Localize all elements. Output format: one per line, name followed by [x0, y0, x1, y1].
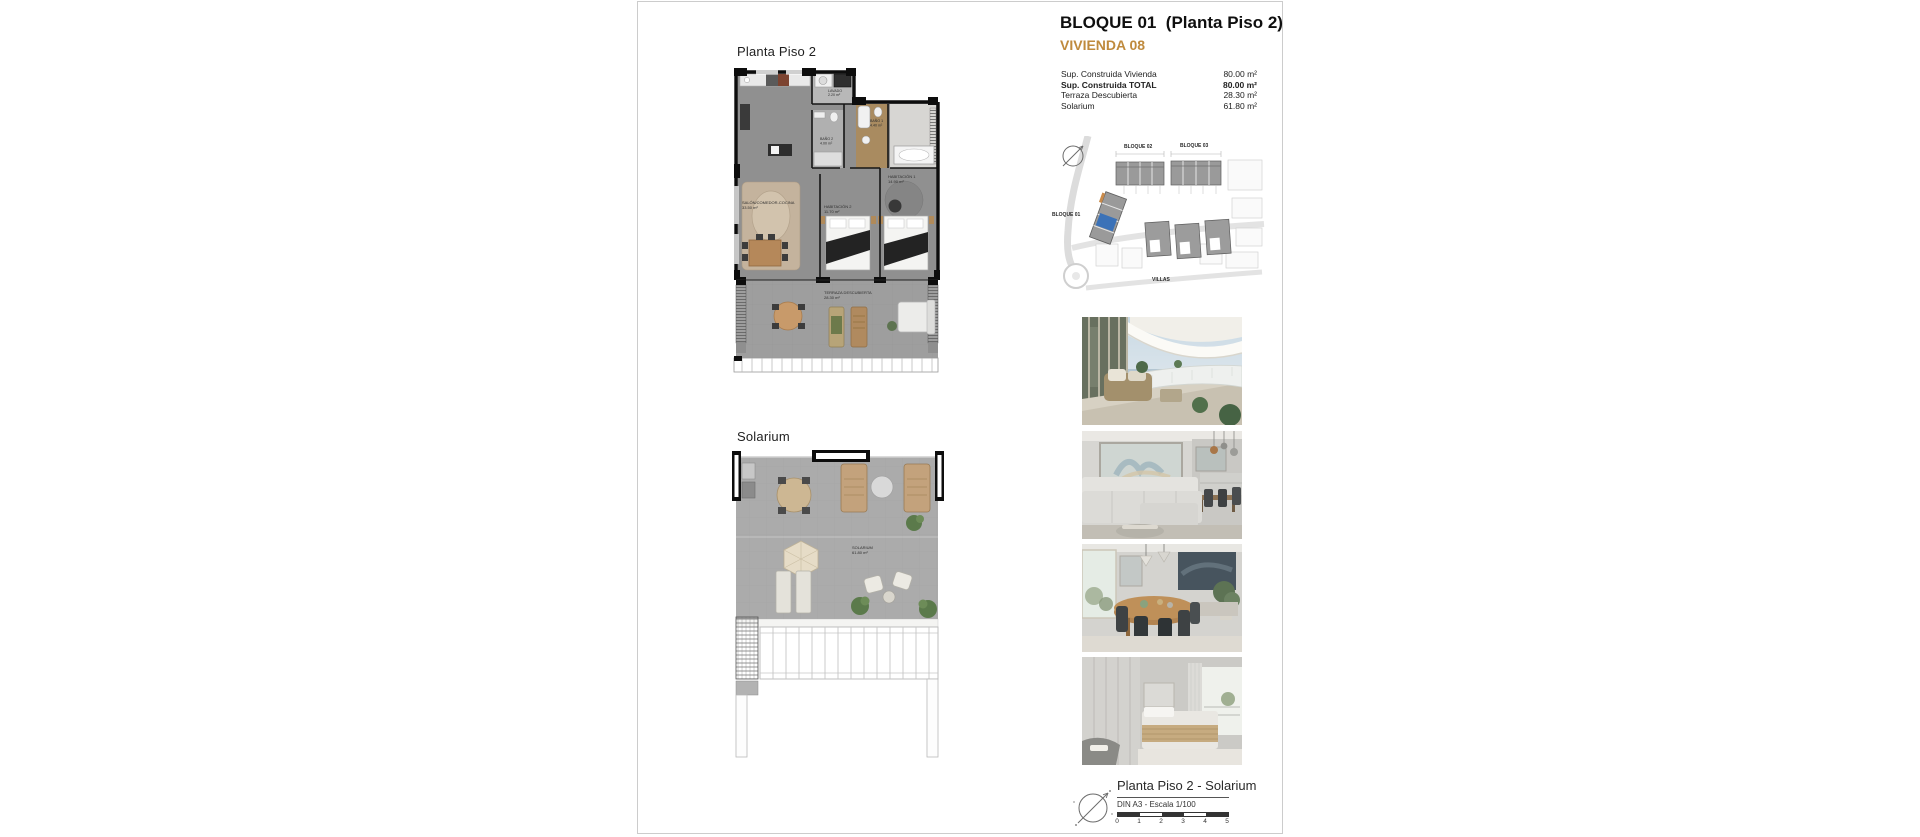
scale-tick: 4: [1201, 818, 1209, 825]
kitchen-tall-unit: [740, 104, 750, 130]
site-plan: BLOQUE 02 BLOQUE 03 BLOQUE 01 VILLAS: [1050, 136, 1266, 312]
photo-terrace-exterior: [1082, 317, 1242, 425]
scale-tick: 0: [1113, 818, 1121, 825]
plan-piso2-title: Planta Piso 2: [737, 44, 816, 59]
table-row: Sup. Construida Vivienda 80.00 m²: [1061, 69, 1257, 80]
table-row: Sup. Construida TOTAL 80.00 m²: [1061, 80, 1257, 91]
photo-living-room: [1082, 431, 1242, 539]
svg-text:14.90 m²: 14.90 m²: [888, 179, 904, 184]
scale-tick: 1: [1135, 818, 1143, 825]
table-row: Solarium 61.80 m²: [1061, 101, 1257, 112]
rattan-sofa-icon: [1104, 369, 1152, 401]
terrace-railing: [734, 358, 938, 372]
photo-dining-room: [1082, 544, 1242, 652]
sheet: Planta Piso 2: [0, 0, 1920, 837]
svg-text:4.00 m²: 4.00 m²: [820, 142, 833, 146]
table-row: Terraza Descubierta 28.30 m²: [1061, 90, 1257, 101]
label-villas: VILLAS: [1152, 277, 1170, 283]
svg-text:11.70 m²: 11.70 m²: [824, 209, 840, 214]
scale-tick: 2: [1157, 818, 1165, 825]
headboard-art: [1144, 683, 1174, 707]
bed-habitacion1-icon: [878, 216, 934, 270]
bed-habitacion2-icon: [820, 216, 876, 270]
svg-text:61.80 m²: 61.80 m²: [852, 550, 868, 555]
vivienda-subtitle: VIVIENDA 08: [1060, 37, 1145, 53]
villas-buildings: [1145, 219, 1231, 259]
lounger-icon: [776, 571, 791, 613]
stair-icon: [736, 617, 758, 679]
lounger-icon: [841, 464, 867, 512]
svg-text:28.30 m²: 28.30 m²: [824, 295, 840, 300]
sofa-sectional: [1082, 477, 1202, 527]
round-rug-icon: [885, 181, 923, 219]
floor-plan-solarium: SOLARIUM 61.80 m²: [732, 449, 944, 763]
legend-scale-note: DIN A3 - Escala 1/100: [1117, 800, 1196, 809]
svg-text:4.40 m²: 4.40 m²: [870, 124, 883, 128]
floor-plan-piso2: SALÓN/COMEDOR-COCINA 33.50 m² LAVADO 2.2…: [732, 64, 944, 382]
dining-table-icon: [749, 240, 781, 266]
bed-icon: [1142, 707, 1218, 749]
svg-text:2.20 m²: 2.20 m²: [828, 93, 841, 97]
label-bano1: BAÑO 1: [870, 118, 883, 123]
compass-icon: [1070, 784, 1116, 832]
scale-tick: 5: [1223, 818, 1231, 825]
page-title: BLOQUE 01 (Planta Piso 2): [1060, 13, 1283, 33]
label-bloque02: BLOQUE 02: [1124, 144, 1153, 150]
lounger-icon: [796, 571, 811, 613]
photo-bedroom: [1082, 657, 1242, 765]
foreground-chair: [1082, 738, 1120, 765]
solarium-railing: [760, 627, 938, 679]
label-bloque01: BLOQUE 01: [1052, 212, 1081, 218]
legend-divider: [1117, 797, 1229, 798]
lounger-icon: [851, 307, 867, 347]
surface-table: Sup. Construida Vivienda 80.00 m² Sup. C…: [1061, 69, 1257, 111]
scale-tick: 3: [1179, 818, 1187, 825]
legend-title: Planta Piso 2 - Solarium: [1117, 778, 1256, 793]
svg-text:33.50 m²: 33.50 m²: [742, 205, 758, 210]
graphic-scale-bar: [1117, 812, 1229, 817]
label-bloque03: BLOQUE 03: [1180, 143, 1209, 149]
bloque02-building: [1116, 162, 1164, 194]
label-bano2: BAÑO 2: [820, 136, 833, 141]
solarium-title: Solarium: [737, 429, 790, 444]
lounger-icon: [904, 464, 930, 512]
bloque03-building: [1171, 161, 1221, 194]
